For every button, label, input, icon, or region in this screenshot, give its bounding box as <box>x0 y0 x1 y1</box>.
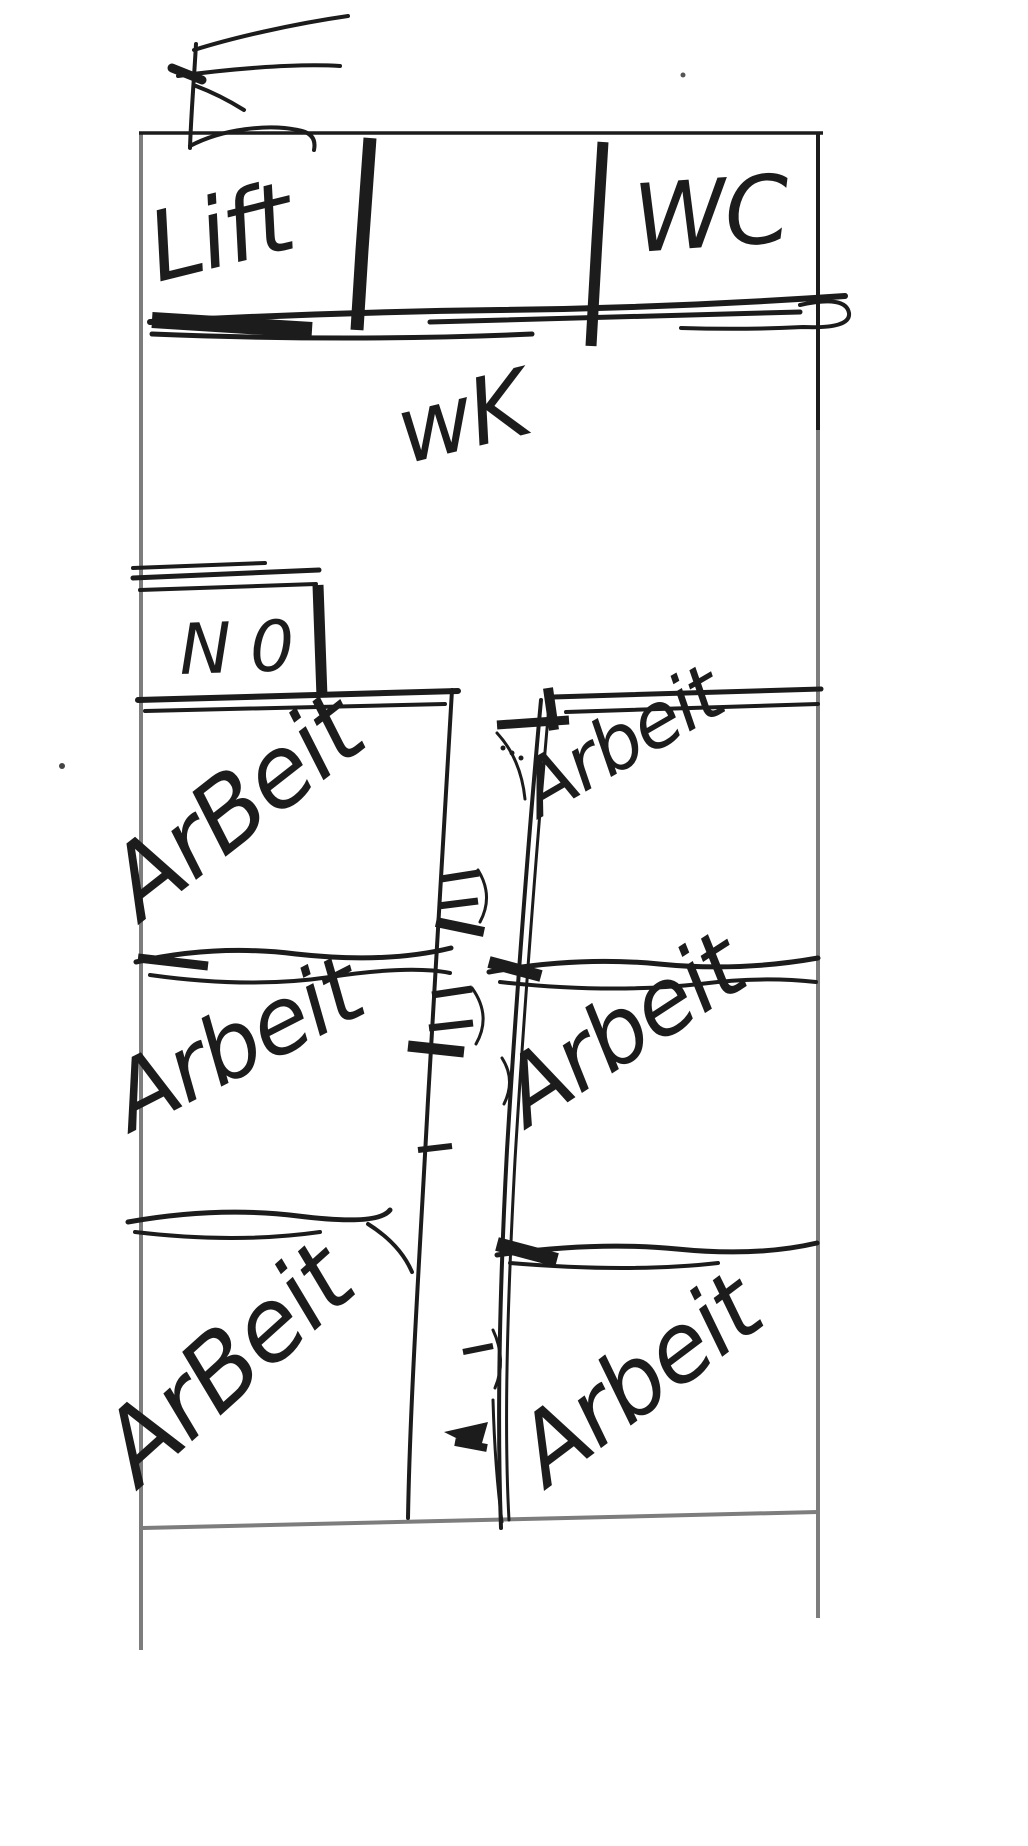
room-label-lift: Lift <box>136 160 308 305</box>
room-label-arbeit-left-3: ArBeit <box>73 1218 379 1510</box>
room-label-n0: N 0 <box>178 605 294 691</box>
e-scribble-mark <box>172 16 348 150</box>
room-label-arbeit-right-3: Arbeit <box>491 1250 786 1510</box>
left-middle-dot <box>59 763 65 769</box>
room-label-wk: wK <box>385 348 547 486</box>
sketch-canvas: Lift wK WC N 0 ArBeit Arbeit ArBeit Arbe… <box>0 0 1028 1846</box>
room-label-arbeit-left-1: ArBeit <box>82 670 389 945</box>
room-label-wc: WC <box>630 155 794 275</box>
room-label-arbeit-left-2: Arbeit <box>89 934 383 1154</box>
top-right-dot <box>681 73 686 78</box>
room-labels: Lift wK WC N 0 ArBeit Arbeit ArBeit Arbe… <box>73 155 794 1510</box>
room-label-arbeit-right-1: Arbeit <box>500 645 741 836</box>
